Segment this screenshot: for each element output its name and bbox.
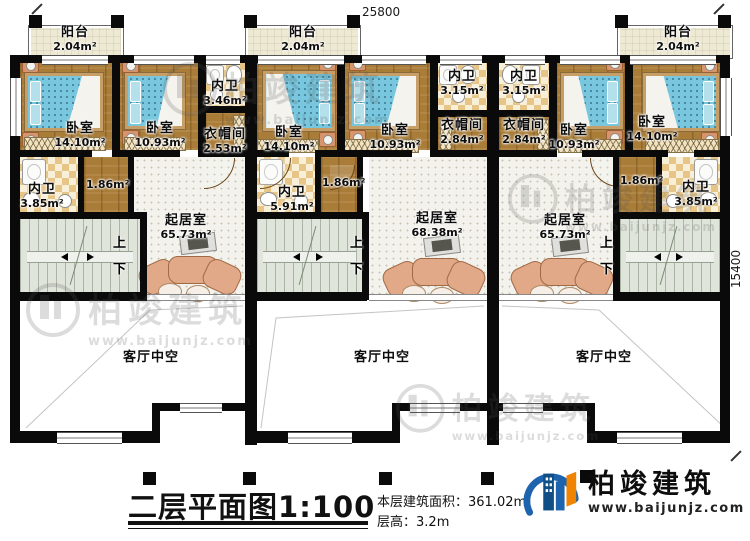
wall — [78, 157, 84, 212]
window — [134, 55, 194, 65]
mezzanine-rail — [147, 294, 245, 301]
room-label-bathroom: 内卫5.91m² — [266, 186, 318, 213]
column-marker — [244, 15, 257, 28]
wall — [140, 212, 147, 300]
pillow — [703, 81, 714, 102]
room-label-living: 起居室68.38m² — [407, 212, 467, 239]
floor-height-value: 3.2m — [416, 515, 449, 530]
wall — [587, 403, 595, 443]
room-label-closet: 1.86m² — [620, 175, 656, 187]
room-label-bedroom: 卧室14.10m² — [261, 126, 317, 153]
window — [410, 403, 460, 413]
window — [57, 432, 122, 444]
room-label-living: 起居室65.73m² — [157, 214, 215, 241]
window — [42, 55, 108, 65]
stair-arrow-icon — [293, 253, 300, 261]
window — [503, 403, 543, 413]
wall — [245, 63, 257, 445]
room-label-bedroom: 卧室14.10m² — [52, 122, 108, 149]
plan-title: 二层平面图1:100 — [128, 484, 375, 526]
wall — [112, 63, 120, 157]
wall — [613, 157, 619, 212]
room-label-bedroom: 卧室10.93m² — [546, 124, 602, 151]
floor-area-info: 本层建筑面积：361.02m² — [377, 491, 531, 510]
mezzanine-rail — [369, 294, 487, 301]
room-label-balcony: 阳台2.04m² — [45, 26, 105, 53]
pillow — [30, 81, 41, 102]
window — [258, 55, 344, 65]
dimension-tick — [730, 450, 741, 461]
company-url: www.baijunjz.com — [588, 501, 745, 516]
stair-landing — [626, 251, 714, 262]
window — [180, 403, 222, 413]
column-marker — [379, 472, 392, 485]
room-label-bedroom: 卧室14.10m² — [624, 116, 680, 143]
wall — [499, 110, 549, 117]
stair-arrow-icon — [654, 253, 661, 261]
stair-down-label: 下 — [350, 258, 363, 277]
wall — [10, 212, 147, 219]
room-label-bedroom: 卧室10.93m² — [367, 124, 423, 151]
stair-up-label: 上 — [600, 232, 613, 251]
room-label-void: 客厅中空 — [119, 351, 183, 366]
room-label-balcony: 阳台2.04m² — [273, 26, 333, 53]
room-label-bathroom: 内卫3.15m² — [439, 70, 485, 97]
title-underline-thin — [128, 528, 368, 529]
window — [206, 55, 240, 65]
dimension-top: 25800 — [362, 5, 400, 19]
wall — [613, 212, 730, 219]
room-label-closet: 1.86m² — [322, 177, 358, 189]
window — [560, 55, 620, 65]
room-label-cloakroom: 衣帽间2.84m² — [437, 119, 487, 146]
wall — [434, 110, 487, 117]
room-label-cloakroom: 衣帽间2.84m² — [499, 119, 549, 146]
pillow — [130, 81, 141, 102]
staircase-left — [20, 219, 140, 292]
column-marker — [347, 15, 360, 28]
wall — [487, 63, 499, 445]
stair-arrow-icon — [87, 253, 94, 261]
pillow — [607, 81, 618, 102]
window — [617, 432, 682, 444]
room-label-closet: 1.86m² — [86, 179, 122, 191]
stair-landing — [263, 251, 355, 262]
plan-title-text: 二层平面图 — [128, 490, 278, 524]
stair-arrow-icon — [676, 253, 683, 261]
wall — [251, 292, 367, 301]
column-marker — [29, 15, 42, 28]
wall — [438, 150, 487, 157]
staircase-right — [620, 219, 720, 292]
pillow — [354, 81, 365, 102]
wall — [118, 150, 180, 157]
wall — [251, 212, 362, 219]
mezzanine-rail — [499, 294, 613, 301]
bed — [560, 72, 624, 130]
room-label-bathroom: 内卫3.46m² — [203, 80, 247, 107]
floor-area-label: 本层建筑面积： — [377, 495, 468, 510]
room-label-living: 起居室65.73m² — [536, 214, 594, 241]
stair-up-label: 上 — [350, 232, 363, 251]
floor-height-info: 层高：3.2m — [377, 511, 449, 530]
company-logo: 柏竣建筑 www.baijunjz.com — [520, 462, 745, 524]
wall — [20, 150, 92, 157]
pillow — [30, 104, 41, 125]
wall — [362, 212, 369, 300]
wall — [392, 403, 400, 443]
wall — [202, 106, 245, 113]
column-marker — [111, 15, 124, 28]
room-label-bathroom: 内卫3.85m² — [18, 183, 66, 210]
nightstand — [319, 132, 336, 147]
window — [440, 55, 482, 65]
pillow — [319, 80, 330, 101]
floor-height-label: 层高： — [377, 515, 416, 530]
wall — [315, 150, 412, 157]
window — [630, 55, 716, 65]
wall — [694, 150, 720, 157]
wall — [337, 63, 345, 157]
plan-scale: 1:100 — [278, 490, 375, 524]
pillow — [130, 103, 141, 124]
pillow — [319, 103, 330, 124]
wall — [613, 292, 730, 301]
room-label-cloakroom: 衣帽间2.53m² — [200, 128, 250, 155]
column-marker — [718, 15, 731, 28]
company-logo-icon — [520, 462, 582, 524]
window — [362, 55, 426, 65]
dimension-tick — [31, 3, 42, 14]
wall — [499, 150, 556, 157]
pillow — [607, 103, 618, 124]
room-label-void: 客厅中空 — [350, 351, 414, 366]
window — [505, 55, 545, 65]
window — [288, 432, 352, 444]
room-label-balcony: 阳台2.04m² — [648, 26, 708, 53]
stair-up-label: 上 — [113, 232, 126, 251]
column-marker — [615, 15, 628, 28]
wall — [582, 150, 668, 157]
bed — [262, 70, 336, 132]
pillow — [354, 103, 365, 124]
bed — [348, 72, 420, 130]
window — [720, 78, 732, 136]
floor-plan-canvas: 25800 15400 阳台2.04m² 阳台2.04m² 阳台2.04m² 卧… — [0, 0, 750, 541]
dimension-right: 15400 — [729, 239, 743, 299]
stair-arrow-icon — [316, 253, 323, 261]
pillow — [703, 104, 714, 125]
title-underline — [128, 521, 368, 525]
company-name: 柏竣建筑 — [588, 471, 745, 498]
stair-down-label: 下 — [113, 258, 126, 277]
wall — [613, 212, 620, 300]
room-label-void: 客厅中空 — [572, 351, 636, 366]
room-label-bedroom: 卧室10.93m² — [132, 122, 188, 149]
dimension-tick — [713, 3, 724, 14]
stair-arrow-icon — [61, 253, 68, 261]
stair-down-label: 下 — [600, 258, 613, 277]
room-label-bathroom: 内卫3.85m² — [670, 181, 722, 208]
wall — [10, 292, 147, 301]
room-label-bathroom: 内卫3.15m² — [501, 70, 547, 97]
column-marker — [481, 472, 494, 485]
wall — [152, 403, 160, 443]
window — [10, 78, 22, 136]
staircase-middle — [257, 219, 362, 292]
